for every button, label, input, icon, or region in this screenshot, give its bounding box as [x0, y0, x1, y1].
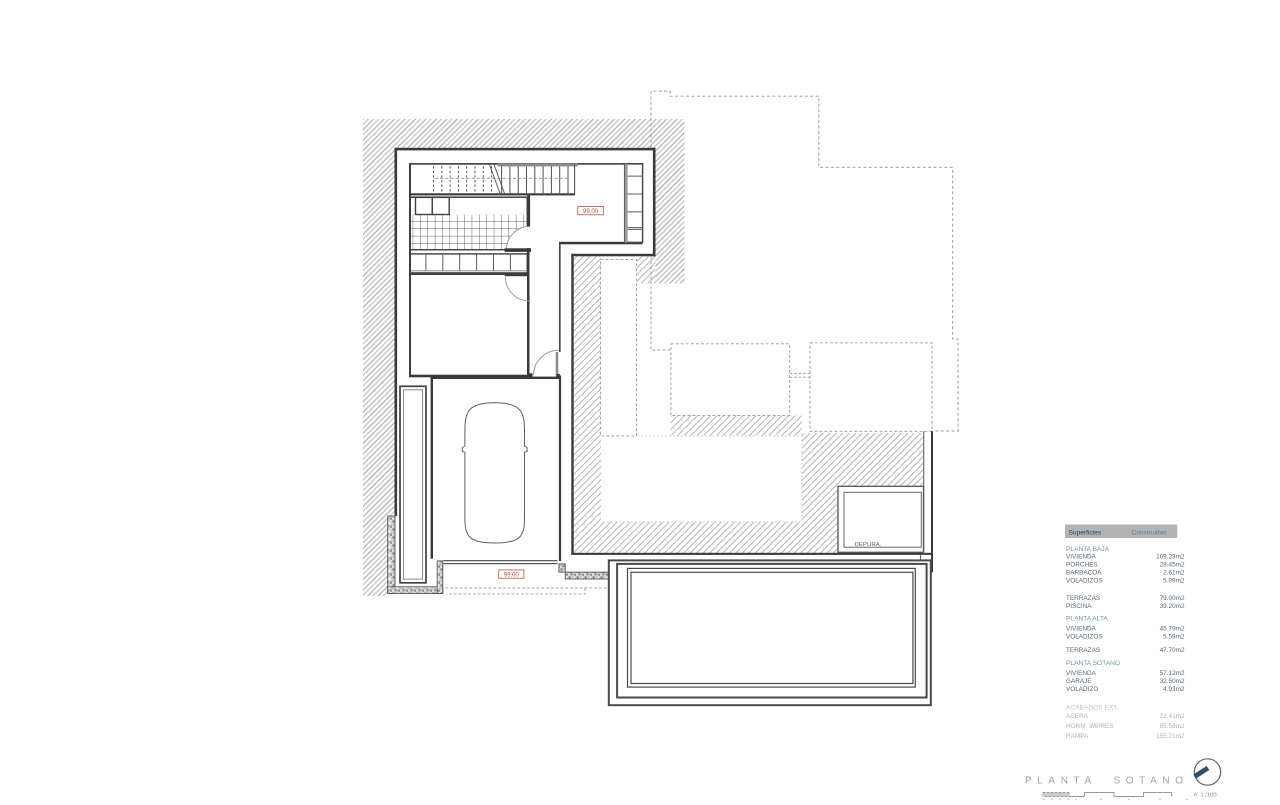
svg-text:Superficies: Superficies	[1069, 529, 1102, 536]
svg-text:22.41m2: 22.41m2	[1160, 713, 1185, 720]
svg-text:GARAJE: GARAJE	[1066, 678, 1092, 685]
svg-text:2.61m2: 2.61m2	[1163, 570, 1185, 577]
svg-text:169.23m2: 169.23m2	[1156, 554, 1185, 561]
svg-text:5.59m2: 5.59m2	[1163, 633, 1185, 640]
svg-text:99.00: 99.00	[583, 209, 599, 215]
svg-text:5.09m2: 5.09m2	[1163, 578, 1185, 585]
svg-text:VOLADIZO: VOLADIZO	[1066, 686, 1098, 693]
svg-text:PLANTA ALTA: PLANTA ALTA	[1066, 615, 1108, 622]
svg-text:RAMPA: RAMPA	[1066, 733, 1089, 740]
svg-text:VOLADIZOS: VOLADIZOS	[1066, 578, 1103, 585]
svg-text:47.70m2: 47.70m2	[1160, 647, 1185, 654]
svg-text:Construidas: Construidas	[1132, 529, 1168, 536]
svg-text:PLANTA SOTANO: PLANTA SOTANO	[1066, 660, 1120, 667]
svg-text:PORCHES: PORCHES	[1066, 562, 1098, 569]
svg-text:TERRAZAS: TERRAZAS	[1066, 595, 1100, 602]
svg-text:HORM. IMPRES: HORM. IMPRES	[1066, 723, 1114, 730]
svg-text:VIVIENDA: VIVIENDA	[1066, 670, 1097, 677]
svg-text:PLANTA BAJA: PLANTA BAJA	[1066, 546, 1110, 553]
svg-text:PISCINA: PISCINA	[1066, 603, 1092, 610]
svg-text:VIVIENDA: VIVIENDA	[1066, 625, 1097, 632]
svg-text:ACERA: ACERA	[1066, 713, 1089, 720]
svg-text:TERRAZAS: TERRAZAS	[1066, 647, 1100, 654]
svg-text:57.12m2: 57.12m2	[1160, 670, 1185, 677]
svg-text:155.71m2: 155.71m2	[1156, 733, 1185, 740]
svg-text:28.45m2: 28.45m2	[1160, 562, 1185, 569]
svg-text:85.56m2: 85.56m2	[1160, 723, 1185, 730]
svg-text:DEPURA.: DEPURA.	[855, 542, 882, 548]
svg-text:e: 1 /100: e: 1 /100	[1194, 793, 1217, 799]
svg-text:79.00m2: 79.00m2	[1160, 595, 1185, 602]
svg-text:PLANTA SOTANO: PLANTA SOTANO	[1025, 776, 1189, 787]
svg-text:BARBACOA: BARBACOA	[1066, 570, 1102, 577]
svg-text:99.00: 99.00	[504, 572, 520, 578]
svg-text:VIVIENDA: VIVIENDA	[1066, 554, 1097, 561]
svg-text:VOLADIZOS: VOLADIZOS	[1066, 633, 1103, 640]
svg-text:4.93m2: 4.93m2	[1163, 686, 1185, 693]
svg-text:39.20m2: 39.20m2	[1160, 603, 1185, 610]
svg-text:32.50m2: 32.50m2	[1160, 678, 1185, 685]
svg-text:ACABADOS EXT.: ACABADOS EXT.	[1066, 704, 1119, 711]
svg-text:45.79m2: 45.79m2	[1160, 625, 1185, 632]
